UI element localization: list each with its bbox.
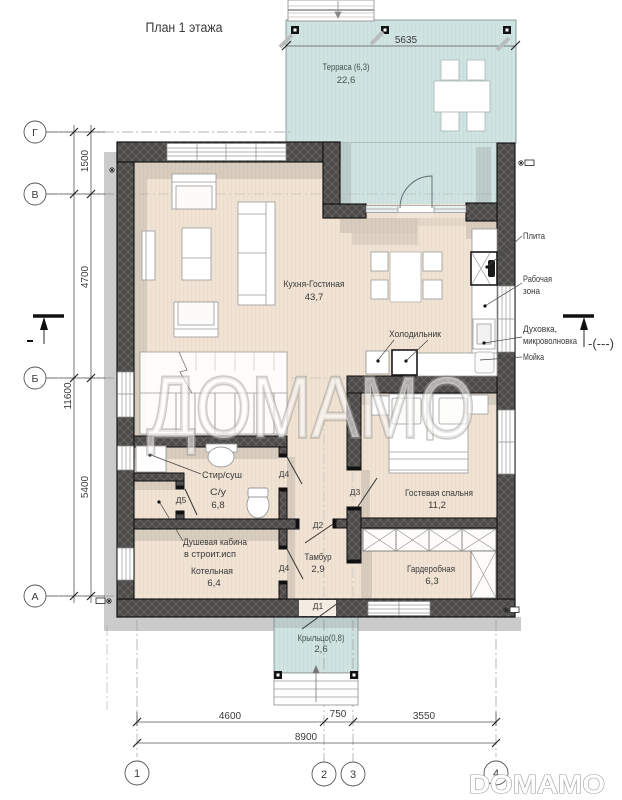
svg-text:3: 3 bbox=[350, 769, 356, 781]
svg-text:в строит.исп: в строит.исп bbox=[184, 549, 236, 560]
svg-text:5400: 5400 bbox=[80, 475, 91, 498]
svg-text:6,8: 6,8 bbox=[211, 500, 224, 511]
svg-text:2: 2 bbox=[321, 769, 327, 781]
svg-text:Тамбур: Тамбур bbox=[305, 552, 332, 563]
svg-text:Д2: Д2 bbox=[313, 520, 324, 530]
svg-text:1500: 1500 bbox=[80, 149, 91, 172]
svg-text:1: 1 bbox=[134, 768, 140, 780]
svg-text:Кухня-Гостиная: Кухня-Гостиная bbox=[284, 279, 345, 290]
svg-text:Гостевая спальня: Гостевая спальня bbox=[405, 488, 473, 499]
svg-text:Мойка: Мойка bbox=[523, 352, 545, 363]
svg-text:2,6: 2,6 bbox=[314, 644, 327, 655]
svg-text:С/у: С/у bbox=[210, 487, 226, 498]
svg-text:11,2: 11,2 bbox=[428, 500, 446, 511]
svg-text:Гардеробная: Гардеробная bbox=[407, 564, 455, 575]
svg-text:DOMAMO: DOMAMO bbox=[469, 769, 605, 799]
svg-text:ДОМАМО: ДОМАМО bbox=[147, 360, 475, 456]
svg-text:Д4: Д4 bbox=[279, 469, 290, 479]
svg-text:А: А bbox=[31, 591, 38, 603]
svg-text:6,3: 6,3 bbox=[425, 576, 438, 587]
svg-text:Д5: Д5 bbox=[176, 495, 187, 505]
svg-text:6,4: 6,4 bbox=[207, 578, 220, 589]
svg-text:Г: Г bbox=[32, 127, 38, 139]
svg-text:микроволновка: микроволновка bbox=[523, 336, 578, 347]
svg-text:Д1: Д1 bbox=[313, 601, 324, 611]
svg-text:8900: 8900 bbox=[295, 732, 318, 743]
svg-text:Крыльцо(0,8): Крыльцо(0,8) bbox=[298, 633, 345, 644]
svg-text:5635: 5635 bbox=[395, 35, 418, 46]
svg-text:3550: 3550 bbox=[413, 711, 436, 722]
svg-text:4700: 4700 bbox=[80, 265, 91, 288]
svg-text:11600: 11600 bbox=[63, 382, 74, 410]
svg-text:Стир/суш: Стир/суш bbox=[202, 470, 242, 481]
svg-text:Духовка,: Духовка, bbox=[523, 324, 557, 335]
svg-text:План 1 этажа: План 1 этажа bbox=[146, 20, 223, 35]
svg-text:Д4: Д4 bbox=[279, 563, 290, 573]
svg-text:4600: 4600 bbox=[219, 711, 242, 722]
svg-text:Котельная: Котельная bbox=[191, 566, 233, 577]
svg-text:В: В bbox=[31, 189, 38, 201]
svg-text:750: 750 bbox=[330, 709, 347, 720]
svg-text:Терраса (6,3): Терраса (6,3) bbox=[323, 62, 370, 73]
svg-text:2,9: 2,9 bbox=[311, 564, 324, 575]
svg-text:Б: Б bbox=[32, 373, 39, 385]
svg-text:зона: зона bbox=[523, 286, 541, 297]
svg-text:Холодильник: Холодильник bbox=[389, 329, 442, 340]
svg-text:Д3: Д3 bbox=[350, 487, 361, 497]
svg-text:Плита: Плита bbox=[523, 231, 546, 242]
svg-text:43,7: 43,7 bbox=[305, 292, 324, 303]
svg-text:Душевая кабина: Душевая кабина bbox=[183, 537, 248, 548]
svg-text:-(---): -(---) bbox=[588, 336, 614, 351]
svg-text:22,6: 22,6 bbox=[337, 75, 356, 86]
svg-text:Рабочая: Рабочая bbox=[523, 274, 552, 285]
